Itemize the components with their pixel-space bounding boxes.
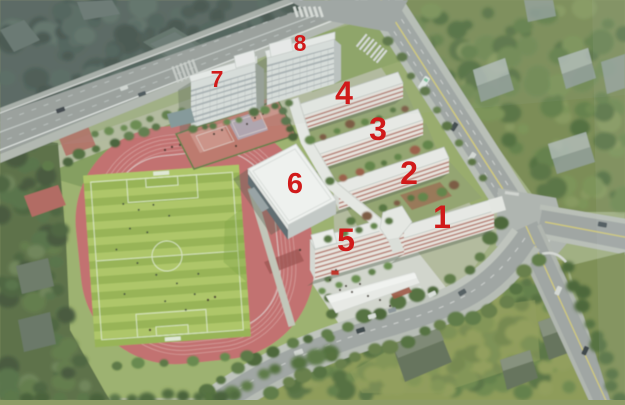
svg-text:2: 2: [400, 155, 418, 191]
svg-text:6: 6: [287, 168, 303, 200]
svg-text:3: 3: [369, 111, 387, 147]
svg-text:7: 7: [211, 66, 224, 92]
svg-text:4: 4: [335, 75, 353, 111]
svg-text:5: 5: [337, 222, 355, 258]
svg-text:8: 8: [294, 30, 307, 56]
svg-text:1: 1: [433, 199, 451, 235]
